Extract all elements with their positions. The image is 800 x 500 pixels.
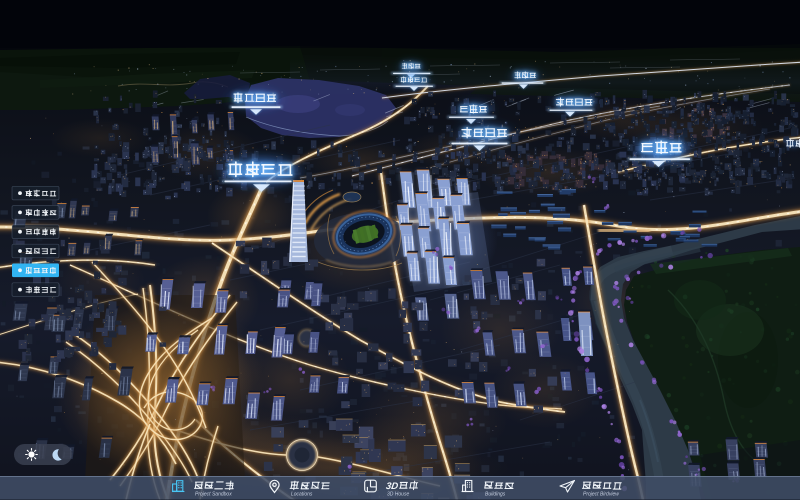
svg-text:Project Sandbox: Project Sandbox bbox=[195, 492, 232, 498]
svg-text:Project Birdview: Project Birdview bbox=[583, 492, 619, 498]
svg-text:Buildings: Buildings bbox=[485, 492, 506, 498]
svg-text:3D House: 3D House bbox=[387, 492, 409, 498]
svg-text:3D: 3D bbox=[385, 481, 399, 492]
svg-text:Locations: Locations bbox=[291, 492, 313, 498]
